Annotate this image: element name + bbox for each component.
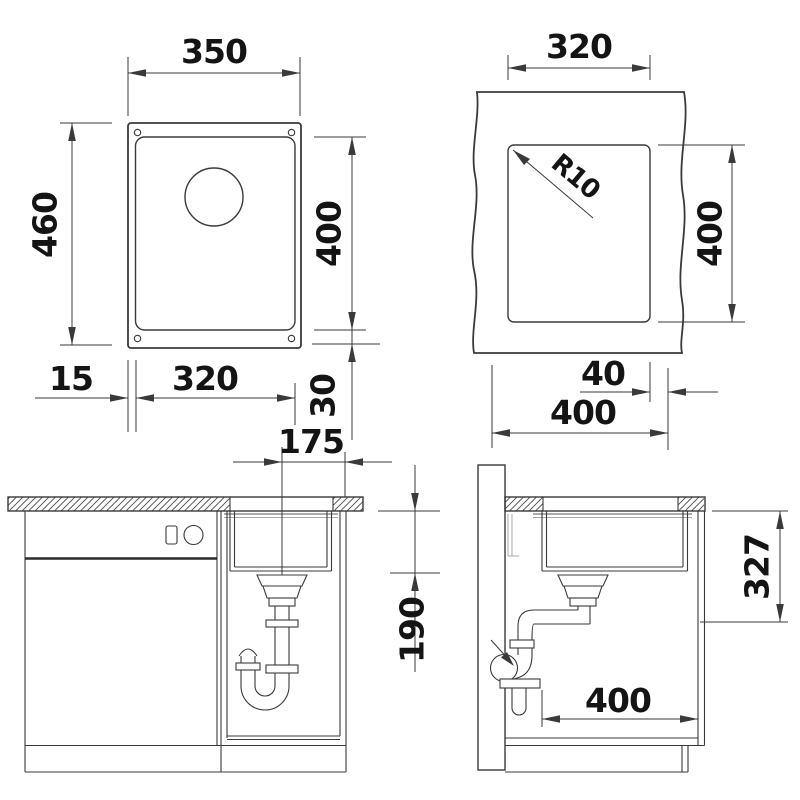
siphon-trap-front bbox=[236, 606, 298, 710]
dim-label-400-cutout: 400 bbox=[691, 201, 730, 267]
front-view: 175 190 bbox=[8, 422, 440, 772]
dim-label-400-top-view: 400 bbox=[310, 201, 349, 267]
bowl-side-section bbox=[542, 511, 688, 571]
left-cabinet bbox=[25, 511, 217, 772]
dim-install-depth: 327 bbox=[700, 511, 788, 622]
worktop-hatch-back bbox=[505, 497, 543, 511]
dim-bowl-width: 320 bbox=[136, 359, 295, 425]
sink-installation-drawing: 350 460 400 30 15 bbox=[0, 0, 800, 800]
dim-label-350: 350 bbox=[181, 32, 247, 71]
worktop-hatch-front bbox=[678, 497, 704, 511]
drain-strainer-front bbox=[257, 575, 307, 606]
dim-clearance-depth: 190 bbox=[378, 465, 440, 672]
worktop-hatch-left bbox=[8, 497, 230, 511]
bowl-front-section bbox=[230, 511, 332, 571]
dim-bowl-depth: 400 bbox=[310, 137, 366, 330]
dim-label-327: 327 bbox=[738, 534, 777, 600]
dim-cabinet-width: 400 bbox=[492, 365, 668, 448]
cutout-view: R10 320 400 40 400 bbox=[472, 27, 745, 450]
dim-label-190: 190 bbox=[393, 597, 432, 663]
dim-label-40: 40 bbox=[581, 354, 625, 393]
side-view: 327 400 bbox=[478, 465, 788, 772]
drain-strainer-side bbox=[558, 575, 608, 606]
dim-label-320-bottom: 320 bbox=[172, 359, 238, 398]
dim-label-30: 30 bbox=[304, 374, 343, 418]
dim-cabinet-depth: 400 bbox=[542, 681, 698, 727]
wall-section bbox=[478, 465, 505, 770]
bowl-rim bbox=[136, 137, 296, 330]
dim-label-15: 15 bbox=[49, 359, 93, 398]
dim-overall-depth: 460 bbox=[26, 123, 112, 345]
dim-label-175: 175 bbox=[278, 422, 344, 461]
dim-side-offset: 15 bbox=[35, 359, 136, 432]
sink-cabinet-front bbox=[25, 511, 346, 772]
sink-cabinet-side bbox=[505, 511, 705, 772]
dim-drain-offset: 175 bbox=[233, 422, 392, 497]
worktop-hatch-right bbox=[333, 497, 363, 511]
cabinet-plinth-side bbox=[505, 746, 688, 773]
top-view: 350 460 400 30 15 bbox=[26, 32, 380, 440]
dim-label-400-cabinet: 400 bbox=[550, 393, 616, 432]
wall-rail bbox=[508, 514, 519, 556]
technical-drawing-canvas: 350 460 400 30 15 bbox=[0, 0, 800, 800]
dim-overall-width: 350 bbox=[128, 32, 300, 116]
panel-knob-icon bbox=[184, 526, 203, 545]
dim-label-320-cutout: 320 bbox=[546, 27, 612, 66]
drain-hole bbox=[185, 168, 243, 226]
dim-label-460: 460 bbox=[26, 192, 65, 258]
panel-switch-icon bbox=[166, 526, 177, 544]
dim-cutout-width: 320 bbox=[508, 27, 650, 80]
cabinet-plinth bbox=[25, 746, 346, 773]
dim-label-400-depth: 400 bbox=[585, 681, 651, 720]
flow-direction-arrow bbox=[491, 640, 505, 656]
